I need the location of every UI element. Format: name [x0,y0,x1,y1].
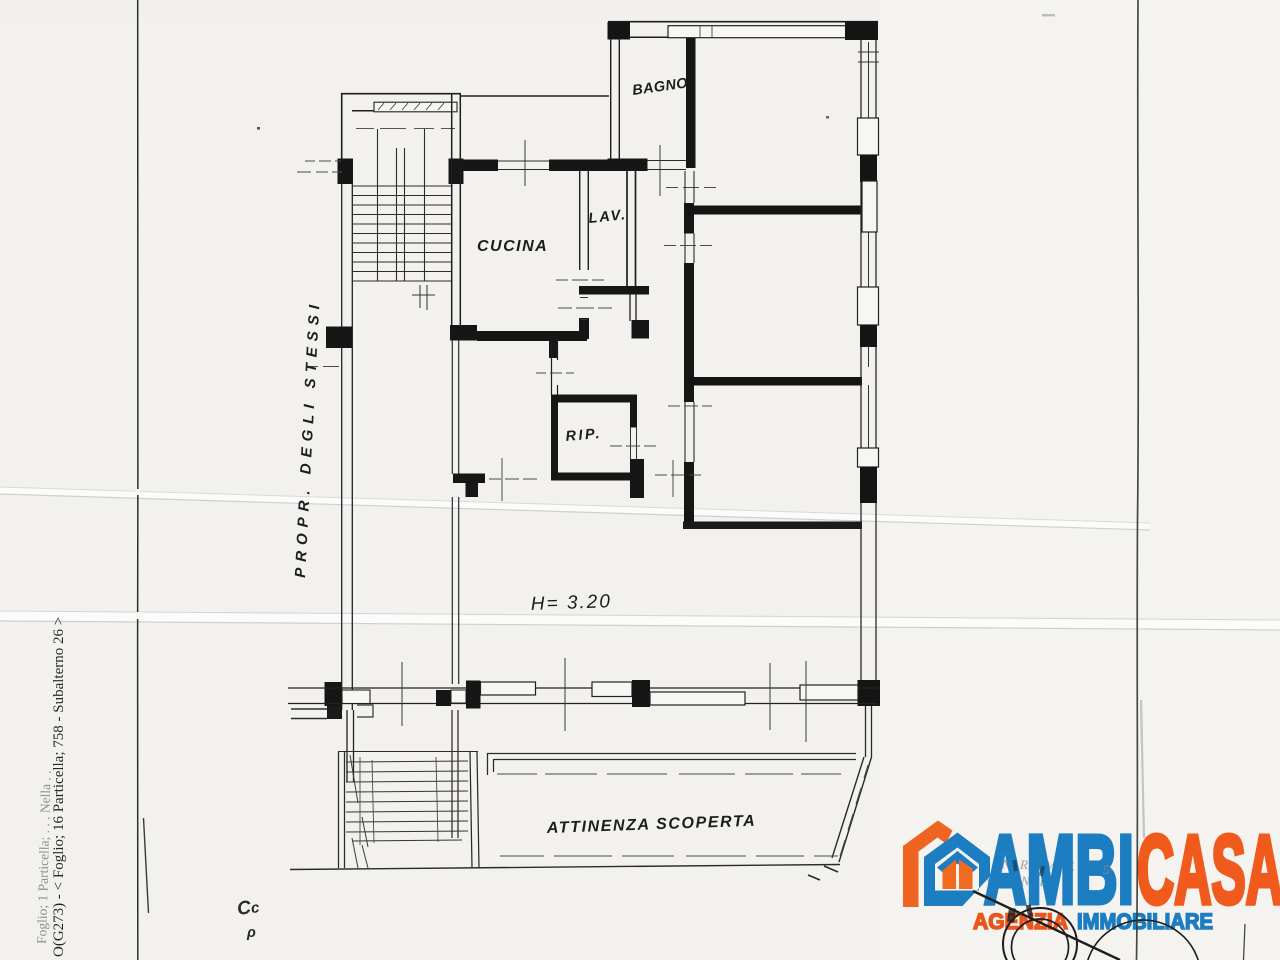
svg-text:ρ: ρ [246,925,256,941]
svg-text:H= 3.20: H= 3.20 [530,591,612,615]
svg-text:IMMOBILIARE: IMMOBILIARE [1077,909,1213,934]
svg-text:CASA: CASA [1137,815,1280,924]
svg-text:RIP.: RIP. [565,426,603,445]
svg-text:CUCINA: CUCINA [477,238,548,255]
svg-text:O(G273) - < Foglio; 16 Partice: O(G273) - < Foglio; 16 Particella; 758 -… [51,617,67,957]
svg-text:5·: 5· [1103,862,1113,877]
